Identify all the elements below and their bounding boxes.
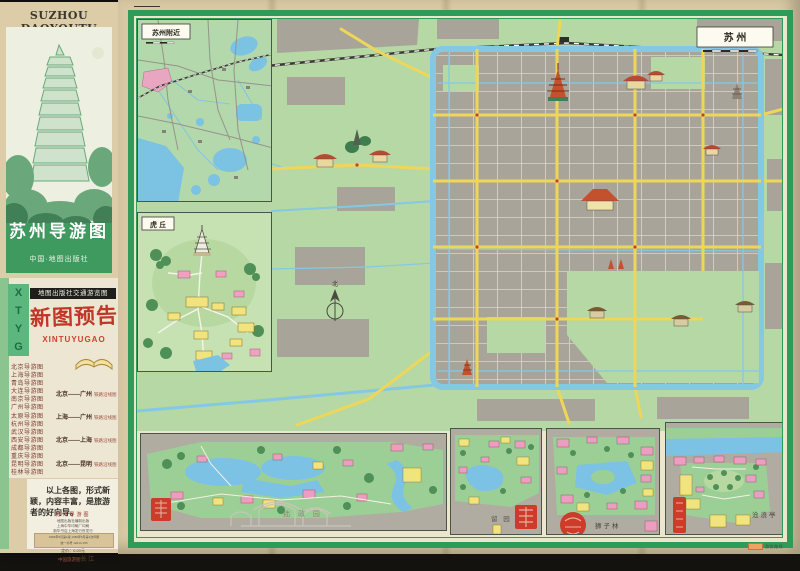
legend-label: 游览路线 (765, 544, 783, 550)
list-item: 太原导游图 (11, 413, 57, 421)
list-item: 重庆导游图 (11, 453, 57, 461)
panel-label: 拙 政 园 (283, 509, 323, 518)
panel-canglangting: 沧浪亭 (665, 422, 783, 535)
cover-title: 苏州导游图 (0, 217, 118, 242)
map-content: 北 苏 州 (136, 18, 783, 538)
svg-text:北: 北 (332, 280, 338, 288)
open-book-icon (74, 351, 114, 375)
seal-stamp (515, 505, 537, 529)
list-item: 北京——昆明铁路沿线图 (56, 453, 118, 471)
list-item: 上海导游图 (11, 372, 57, 380)
imprint-block: 苏州导游图 地图出版社编制出版 上海中华印刷厂印刷 新华书店上海发行所发行 (30, 511, 116, 533)
legend-item: 游览路线 (748, 543, 783, 550)
cover-publisher: 中国·地图出版社 (0, 254, 118, 264)
seal-stamp (151, 498, 171, 521)
panel-label: 留 园 (491, 514, 512, 523)
legend-swatch (748, 543, 763, 550)
list-item: 广州导游图 (11, 404, 57, 412)
panel-zhuozhengyuan: 拙 政 园 (140, 433, 447, 531)
svg-text:虎 丘: 虎 丘 (150, 220, 166, 229)
city-guide-list: 北京导游图 上海导游图 青岛导游图 大连导游图 南京导游图 广州导游图 太原导游… (11, 364, 57, 477)
inset-huqiu: 虎 丘 (137, 212, 272, 372)
scale-bar (703, 50, 757, 52)
island (591, 470, 615, 484)
list-item: 武汉导游图 (11, 429, 57, 437)
list-item: 北京导游图 (11, 364, 57, 372)
promo-header: 地图出版社交通游览图 (30, 288, 116, 299)
promo-script-title: 新图预告 (30, 299, 119, 332)
list-item: 昆明导游图 (11, 461, 57, 469)
list-item: 青岛导游图 (11, 380, 57, 388)
inset-label-box: 虎 丘 (142, 217, 174, 230)
promo-side-letters: X T Y G (8, 284, 29, 356)
cover-panel: SUZHOU DAOYOUTU (0, 2, 118, 553)
svg-text:苏 州: 苏 州 (724, 31, 747, 44)
list-item: 北京——广州铁路沿线图 (56, 383, 118, 401)
map-sheet: 北 苏 州 (118, 0, 800, 554)
list-item: 桂林导游图 (11, 469, 57, 477)
list-item: 上海——广州铁路沿线图 (56, 406, 118, 424)
price-line: 定价：0.20元 (30, 548, 116, 554)
imprint-line: 地图出版社编制出版 (34, 518, 111, 523)
imprint-box: 1982年5月第1版 1982年5月第1次印刷 统一书号 12014·155 (34, 533, 114, 548)
list-item: 北京——上海铁路沿线图 (56, 429, 118, 447)
promo-script-latin: XINTUYUGAO (30, 335, 118, 344)
list-item: 大连导游图 (11, 388, 57, 396)
imprint-line: 上海中华印刷厂印刷 (34, 523, 111, 528)
panel-shizilin: 狮子林 (546, 428, 660, 535)
seal-stamp (673, 497, 686, 533)
panel-label: 沧浪亭 (752, 510, 778, 519)
map-frame: 北 苏 州 (128, 10, 793, 548)
list-item: 成都导游图 (11, 445, 57, 453)
svg-text:苏州附近: 苏州附近 (152, 28, 180, 37)
panel-liuyuan: 留 园 (450, 428, 542, 535)
imprint-title: 苏州导游图 (30, 511, 116, 518)
list-item: 杭州导游图 (11, 421, 57, 429)
list-item: 南京导游图 (11, 396, 57, 404)
margin-mark (134, 2, 160, 7)
list-item: 西安导游图 (11, 437, 57, 445)
panel-label: 狮子林 (595, 521, 621, 530)
inset-vicinity: 苏州附近 (137, 19, 272, 202)
